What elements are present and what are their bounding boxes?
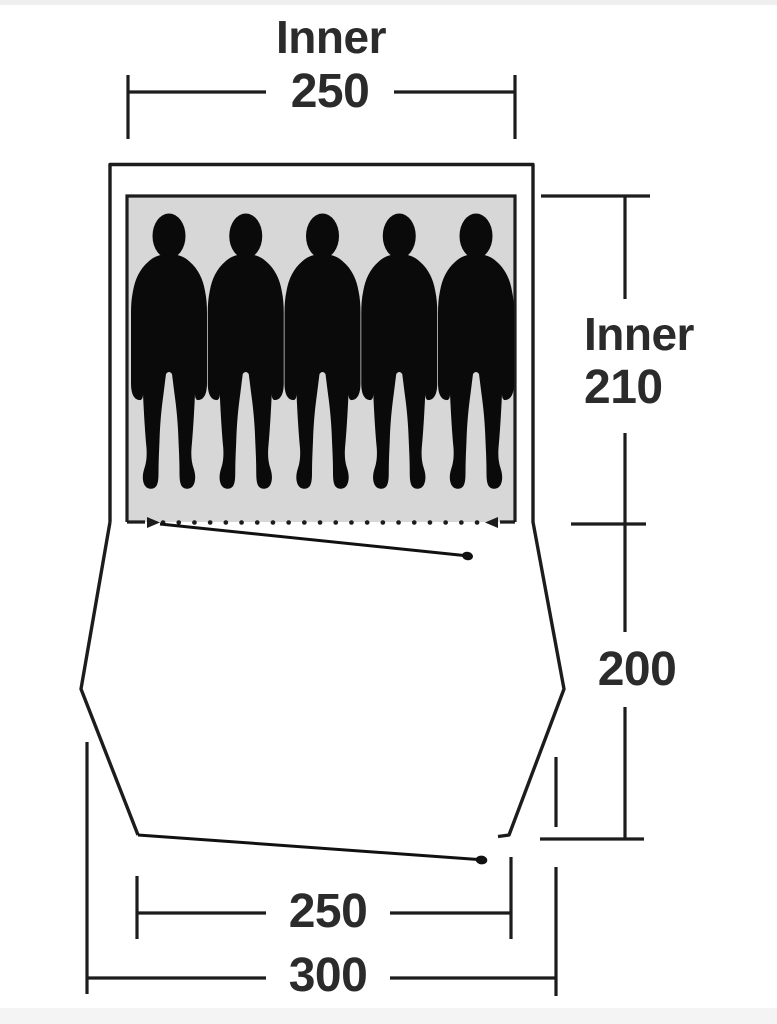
label-inner-width-value: 250 — [291, 68, 370, 116]
front-door-pole-dot — [475, 855, 487, 865]
inner-door-line — [160, 524, 464, 556]
floorplan-drawing — [0, 0, 777, 1024]
label-outer-width-value: 300 — [289, 952, 368, 1000]
label-inner-width-title: Inner — [276, 14, 386, 60]
label-inner-depth-title: Inner — [584, 311, 694, 357]
label-front-inner-width-value: 250 — [289, 888, 368, 936]
tent-floorplan-diagram: Inner 250 Inner 210 200 250 300 — [0, 0, 777, 1024]
label-porch-depth-value: 200 — [598, 646, 677, 694]
dim-inner-depth-lines — [541, 196, 650, 524]
inner-door-pole-dot — [461, 551, 473, 561]
front-door-line — [138, 835, 478, 860]
label-inner-depth-value: 210 — [584, 364, 663, 412]
